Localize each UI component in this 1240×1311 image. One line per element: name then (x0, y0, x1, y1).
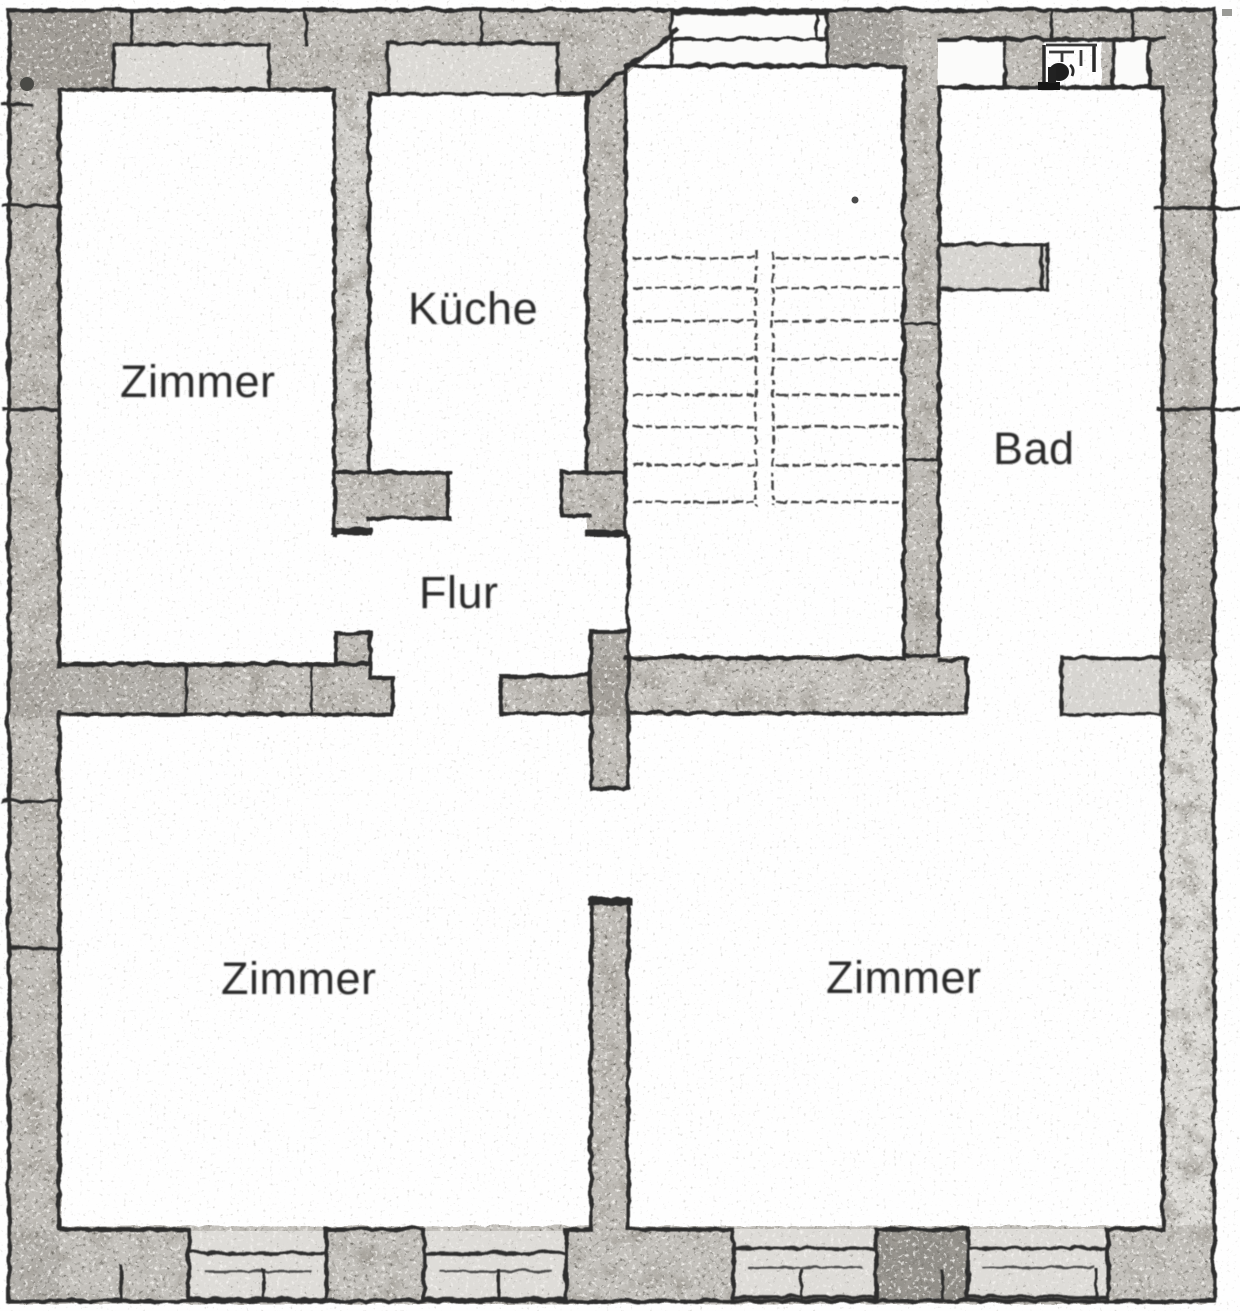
svg-text:Flur: Flur (419, 567, 499, 618)
svg-text:Zimmer: Zimmer (120, 356, 275, 407)
svg-text:Zimmer: Zimmer (221, 953, 376, 1004)
svg-text:Zimmer: Zimmer (826, 952, 981, 1003)
svg-text:Bad: Bad (993, 423, 1075, 474)
svg-text:Küche: Küche (408, 283, 538, 334)
